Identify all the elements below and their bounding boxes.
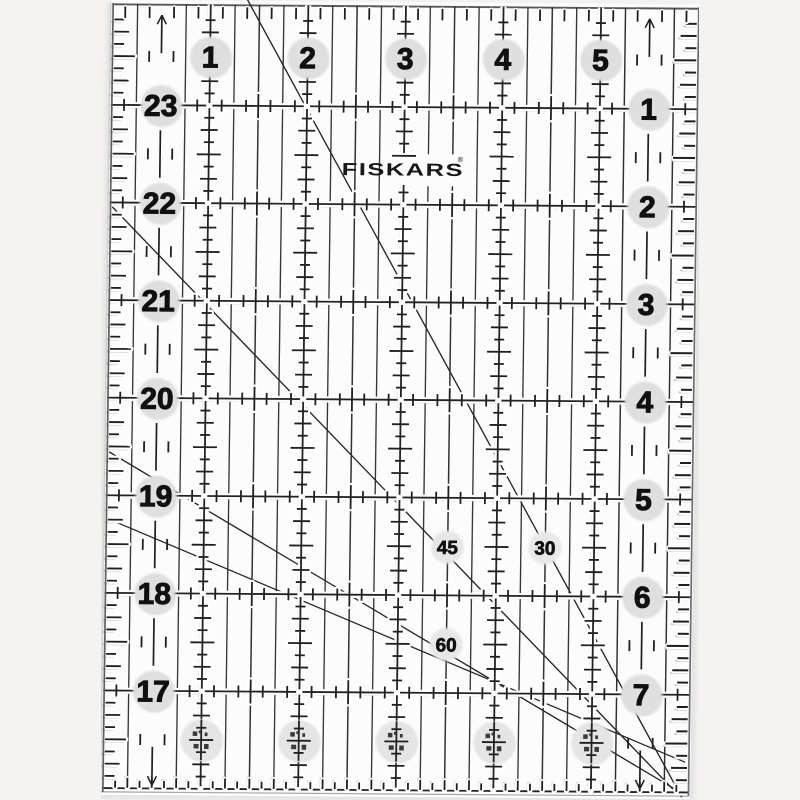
svg-text:60: 60 xyxy=(435,635,456,656)
svg-text:1: 1 xyxy=(640,94,657,127)
svg-text:20: 20 xyxy=(140,383,174,416)
svg-text:21: 21 xyxy=(141,285,175,318)
svg-text:19: 19 xyxy=(139,480,173,513)
svg-text:5: 5 xyxy=(635,484,652,517)
svg-text:23: 23 xyxy=(144,90,178,123)
svg-text:6: 6 xyxy=(634,582,651,615)
svg-text:4: 4 xyxy=(494,44,511,77)
svg-text:4: 4 xyxy=(636,386,653,419)
svg-text:FISKARS: FISKARS xyxy=(342,159,464,180)
svg-text:17: 17 xyxy=(136,675,170,708)
svg-text:5: 5 xyxy=(592,44,609,77)
svg-text:45: 45 xyxy=(437,538,459,559)
svg-text:22: 22 xyxy=(143,187,177,220)
svg-text:7: 7 xyxy=(632,679,649,712)
svg-text:30: 30 xyxy=(534,539,555,560)
svg-text:1: 1 xyxy=(202,41,219,74)
svg-text:3: 3 xyxy=(397,43,414,76)
svg-text:2: 2 xyxy=(639,191,656,224)
svg-text:3: 3 xyxy=(638,289,655,322)
svg-text:2: 2 xyxy=(299,42,316,75)
svg-text:®: ® xyxy=(458,155,464,164)
svg-text:18: 18 xyxy=(137,578,171,611)
